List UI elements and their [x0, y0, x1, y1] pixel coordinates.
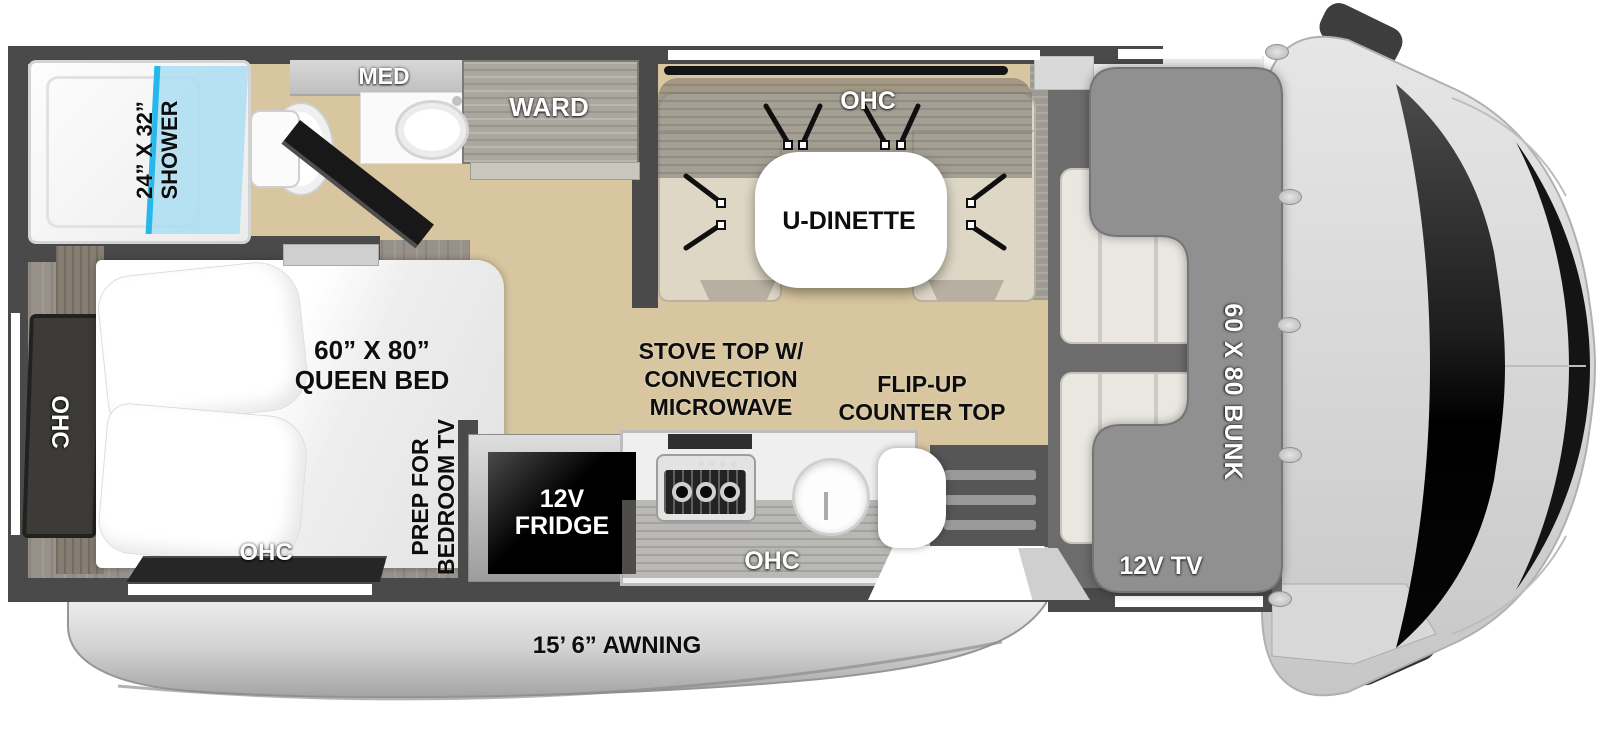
dinette-table	[755, 152, 947, 288]
overcab-bunk	[1090, 68, 1282, 592]
overlay	[0, 0, 1600, 733]
kitchen-faucet-icon	[824, 492, 828, 520]
clearance-light-icon	[1278, 447, 1302, 463]
clearance-light-icon	[1277, 317, 1301, 333]
floorplan-canvas: 12V FRIDGE	[0, 0, 1600, 733]
clearance-light-icon	[1268, 591, 1292, 607]
kitchen-sink	[792, 458, 870, 536]
clearance-light-icon	[1278, 189, 1302, 205]
stove-grill-icon	[664, 470, 746, 514]
flip-up-counter	[878, 448, 946, 548]
clearance-light-icon	[1265, 44, 1289, 60]
stove	[656, 454, 756, 522]
burner-icon	[696, 482, 716, 502]
burner-icon	[672, 482, 692, 502]
burner-icon	[720, 482, 740, 502]
stove-knobs-icon	[698, 461, 704, 467]
